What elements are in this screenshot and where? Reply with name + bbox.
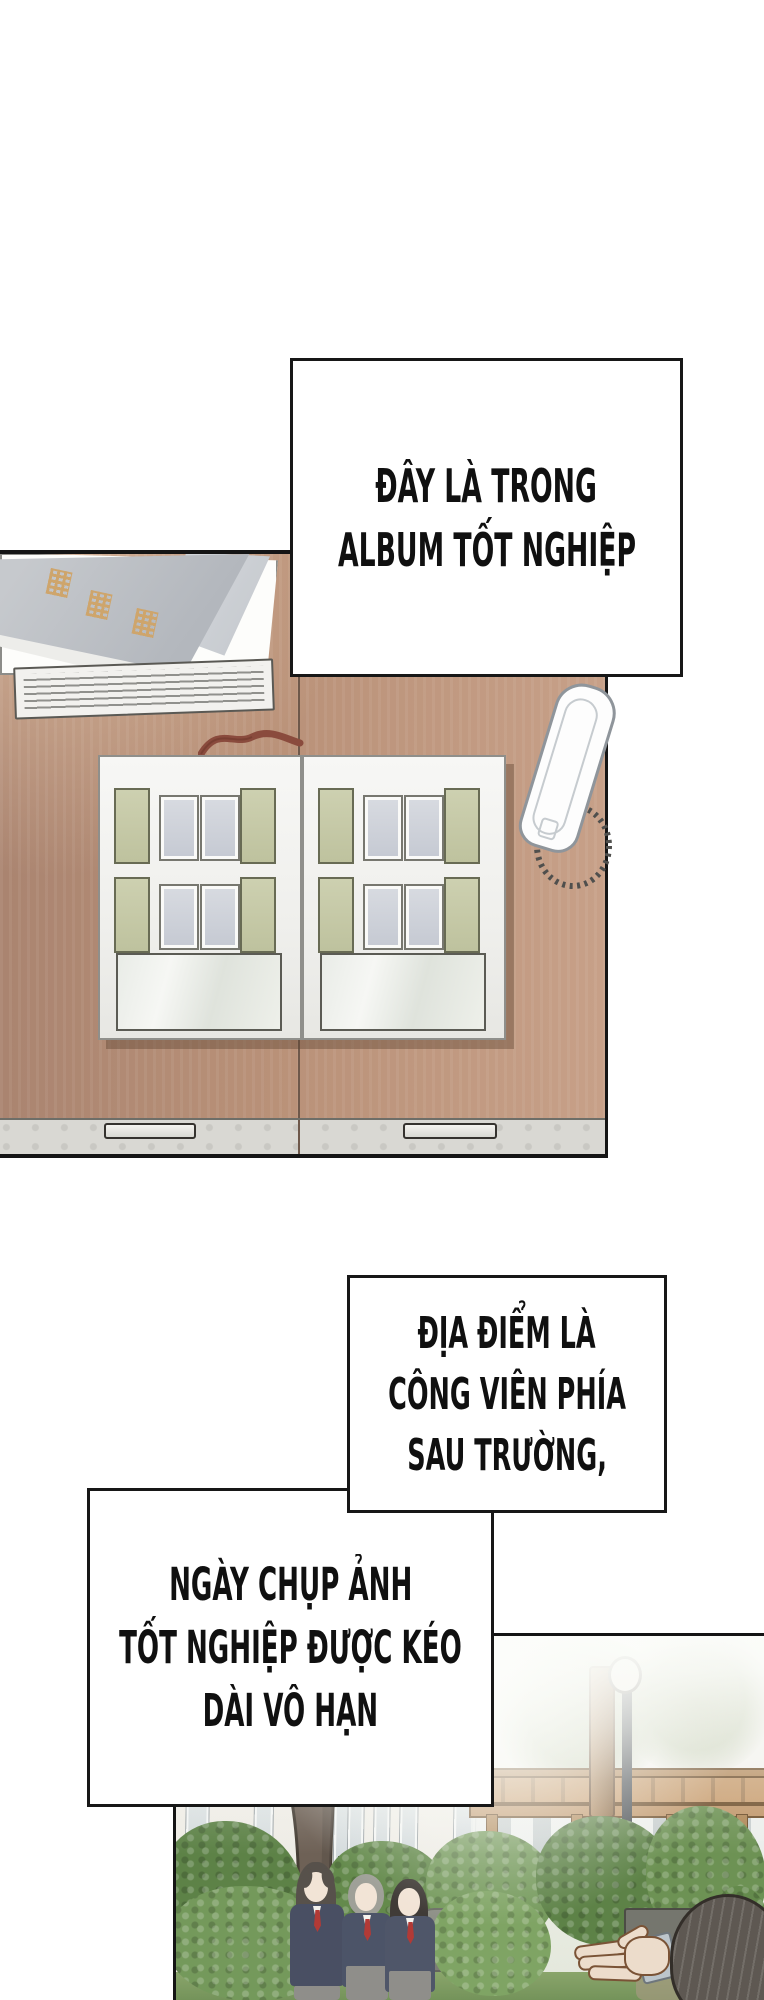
photo-slot — [363, 884, 403, 950]
photo-slot — [114, 788, 150, 864]
caption-line: ĐÂY LÀ TRONG — [376, 454, 598, 518]
caption-box-1: ĐÂY LÀ TRONG ALBUM TỐT NGHIỆP — [290, 358, 683, 677]
ribbon-bookmark — [198, 714, 306, 760]
pad-page-lines — [23, 666, 264, 712]
caption-box-3: NGÀY CHỤP ẢNH TỐT NGHIỆP ĐƯỢC KÉO DÀI VÔ… — [87, 1488, 494, 1807]
photo-slot — [200, 795, 240, 861]
caption-line: TỐT NGHIỆP ĐƯỢC KÉO — [119, 1616, 462, 1679]
desk-seam-line — [298, 1120, 300, 1156]
photo-slot — [159, 884, 199, 950]
photo-slot — [404, 884, 444, 950]
photo-slot — [444, 788, 480, 864]
intercom-handset — [525, 678, 640, 898]
photo — [205, 800, 235, 856]
photo-slot — [240, 877, 276, 953]
photo — [205, 889, 235, 945]
caption-line: NGÀY CHỤP ẢNH — [169, 1553, 412, 1616]
photo-slot — [404, 795, 444, 861]
photo-slot — [318, 877, 354, 953]
comic-page: ĐÂY LÀ TRONG ALBUM TỐT NGHIỆP — [0, 0, 764, 2000]
photo-slot — [114, 877, 150, 953]
photo-slot-wide — [116, 953, 282, 1031]
photo-slot — [240, 788, 276, 864]
open-photo-album — [98, 755, 502, 1040]
caption-box-2: ĐỊA ĐIỂM LÀ CÔNG VIÊN PHÍA SAU TRƯỜNG, — [347, 1275, 667, 1513]
handset-mic — [537, 817, 560, 841]
photo-slot — [318, 788, 354, 864]
photo — [164, 800, 194, 856]
caption-line: SAU TRƯỜNG, — [407, 1425, 607, 1486]
cover-title-glyph — [86, 590, 113, 620]
photo — [368, 800, 398, 856]
photo — [409, 889, 439, 945]
photo — [164, 889, 194, 945]
cover-title-glyph — [46, 568, 73, 598]
caption-line: ĐỊA ĐIỂM LÀ — [418, 1303, 596, 1364]
caption-line: ALBUM TỐT NGHIỆP — [337, 518, 635, 582]
drawer-handle — [104, 1123, 196, 1139]
caption-line: DÀI VÔ HẠN — [203, 1679, 379, 1742]
stacked-pages-pad — [13, 658, 275, 719]
photo — [368, 889, 398, 945]
photo-slot-wide — [320, 953, 486, 1031]
photo-slot — [159, 795, 199, 861]
photo-slot — [200, 884, 240, 950]
drawer-handle — [403, 1123, 497, 1139]
photo-slot — [363, 795, 403, 861]
desk-front-edge — [0, 1118, 605, 1156]
photo — [409, 800, 439, 856]
photo-slot — [444, 877, 480, 953]
cover-title-glyph — [132, 608, 159, 638]
caption-line: CÔNG VIÊN PHÍA — [388, 1364, 626, 1425]
